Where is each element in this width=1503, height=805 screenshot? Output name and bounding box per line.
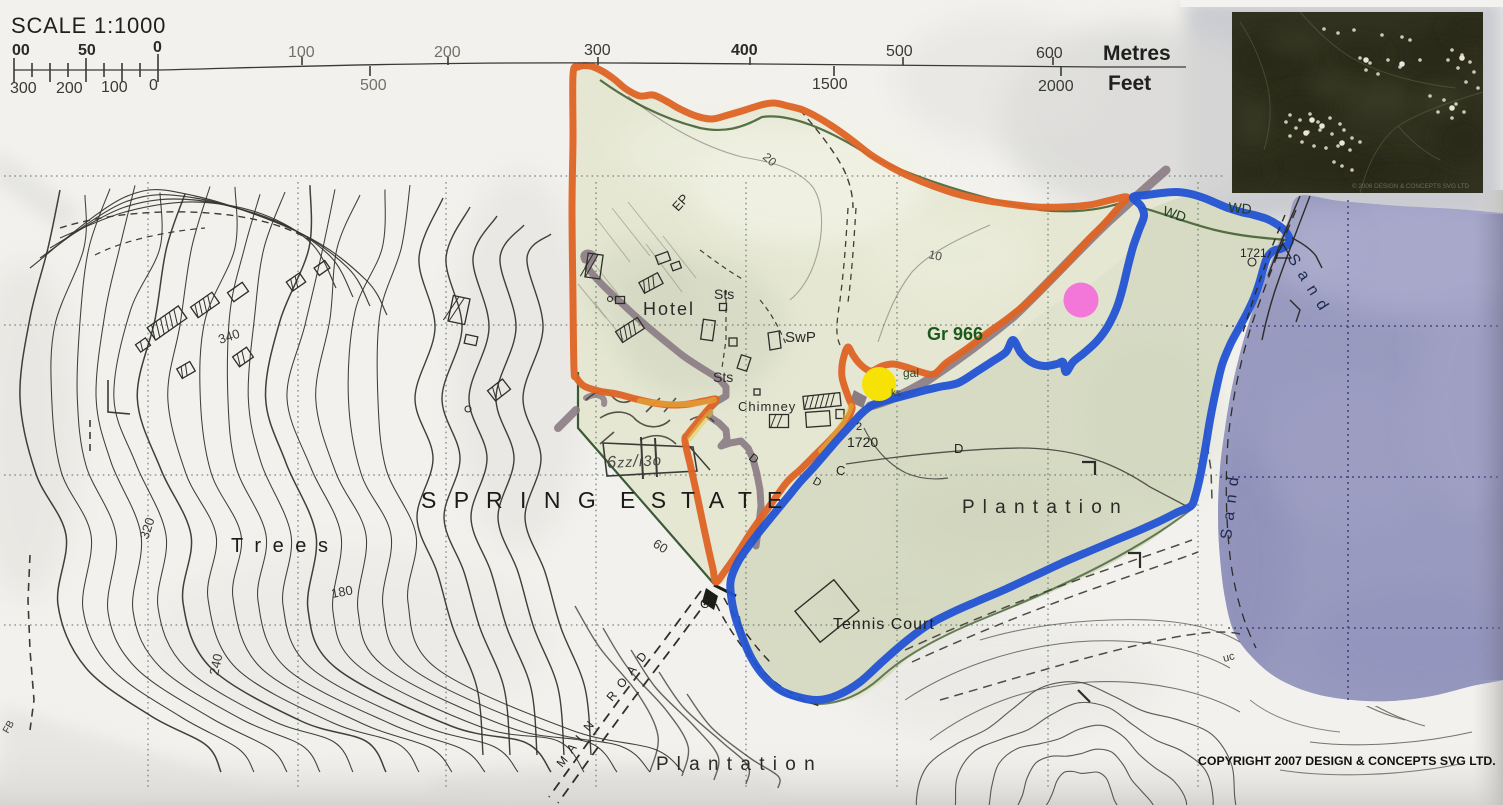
svg-text:2: 2 (856, 421, 862, 433)
svg-text:D: D (954, 441, 963, 456)
svg-text:600: 600 (1036, 45, 1063, 62)
svg-text:Gr 966: Gr 966 (927, 324, 983, 344)
svg-text:50: 50 (78, 42, 96, 59)
svg-text:300: 300 (10, 80, 37, 97)
svg-text:400: 400 (731, 42, 758, 59)
svg-text:COPYRIGHT 2007 DESIGN & CONCEP: COPYRIGHT 2007 DESIGN & CONCEPTS SVG LTD… (1198, 754, 1496, 768)
svg-text:gal: gal (903, 366, 919, 380)
svg-text:200: 200 (56, 80, 83, 97)
svg-text:S P R I N G: S P R I N G (421, 487, 601, 513)
svg-text:0: 0 (153, 39, 162, 56)
svg-text:Tennis Court: Tennis Court (833, 616, 935, 633)
svg-text:Sts: Sts (714, 286, 734, 302)
svg-text:Feet: Feet (1108, 72, 1151, 95)
svg-text:Hotel: Hotel (643, 299, 695, 319)
svg-text:0: 0 (149, 77, 158, 94)
svg-text:100: 100 (101, 79, 128, 96)
svg-text:C: C (700, 596, 709, 611)
svg-text:00: 00 (12, 42, 30, 59)
svg-text:500: 500 (360, 77, 387, 94)
svg-text:1500: 1500 (812, 76, 848, 93)
svg-text:300: 300 (584, 42, 611, 59)
svg-text:Chimney: Chimney (738, 399, 796, 414)
svg-text:P l a n t a t i o n: P l a n t a t i o n (656, 754, 816, 775)
svg-text:1720: 1720 (847, 434, 878, 450)
svg-text:200: 200 (434, 44, 461, 61)
svg-text:SwP: SwP (785, 329, 816, 346)
svg-text:Metres: Metres (1103, 42, 1171, 65)
svg-text:2000: 2000 (1038, 78, 1074, 95)
svg-text:C: C (836, 463, 845, 478)
svg-text:E S T A T E: E S T A T E (620, 487, 787, 513)
svg-text:ks: ks (891, 388, 901, 399)
svg-text:P l a n t a t i o n: P l a n t a t i o n (962, 497, 1122, 518)
svg-text:100: 100 (288, 44, 315, 61)
svg-text:T r e e s: T r e e s (231, 535, 331, 557)
svg-text:SCALE 1:1000: SCALE 1:1000 (11, 13, 166, 38)
svg-text:© 2006 DESIGN & CONCEPTS SVG L: © 2006 DESIGN & CONCEPTS SVG LTD (1352, 182, 1470, 190)
svg-text:500: 500 (886, 43, 913, 60)
svg-text:WD: WD (1228, 199, 1253, 217)
svg-text:6zz/i3o: 6zz/i3o (606, 450, 662, 472)
svg-text:Sts: Sts (713, 369, 733, 385)
